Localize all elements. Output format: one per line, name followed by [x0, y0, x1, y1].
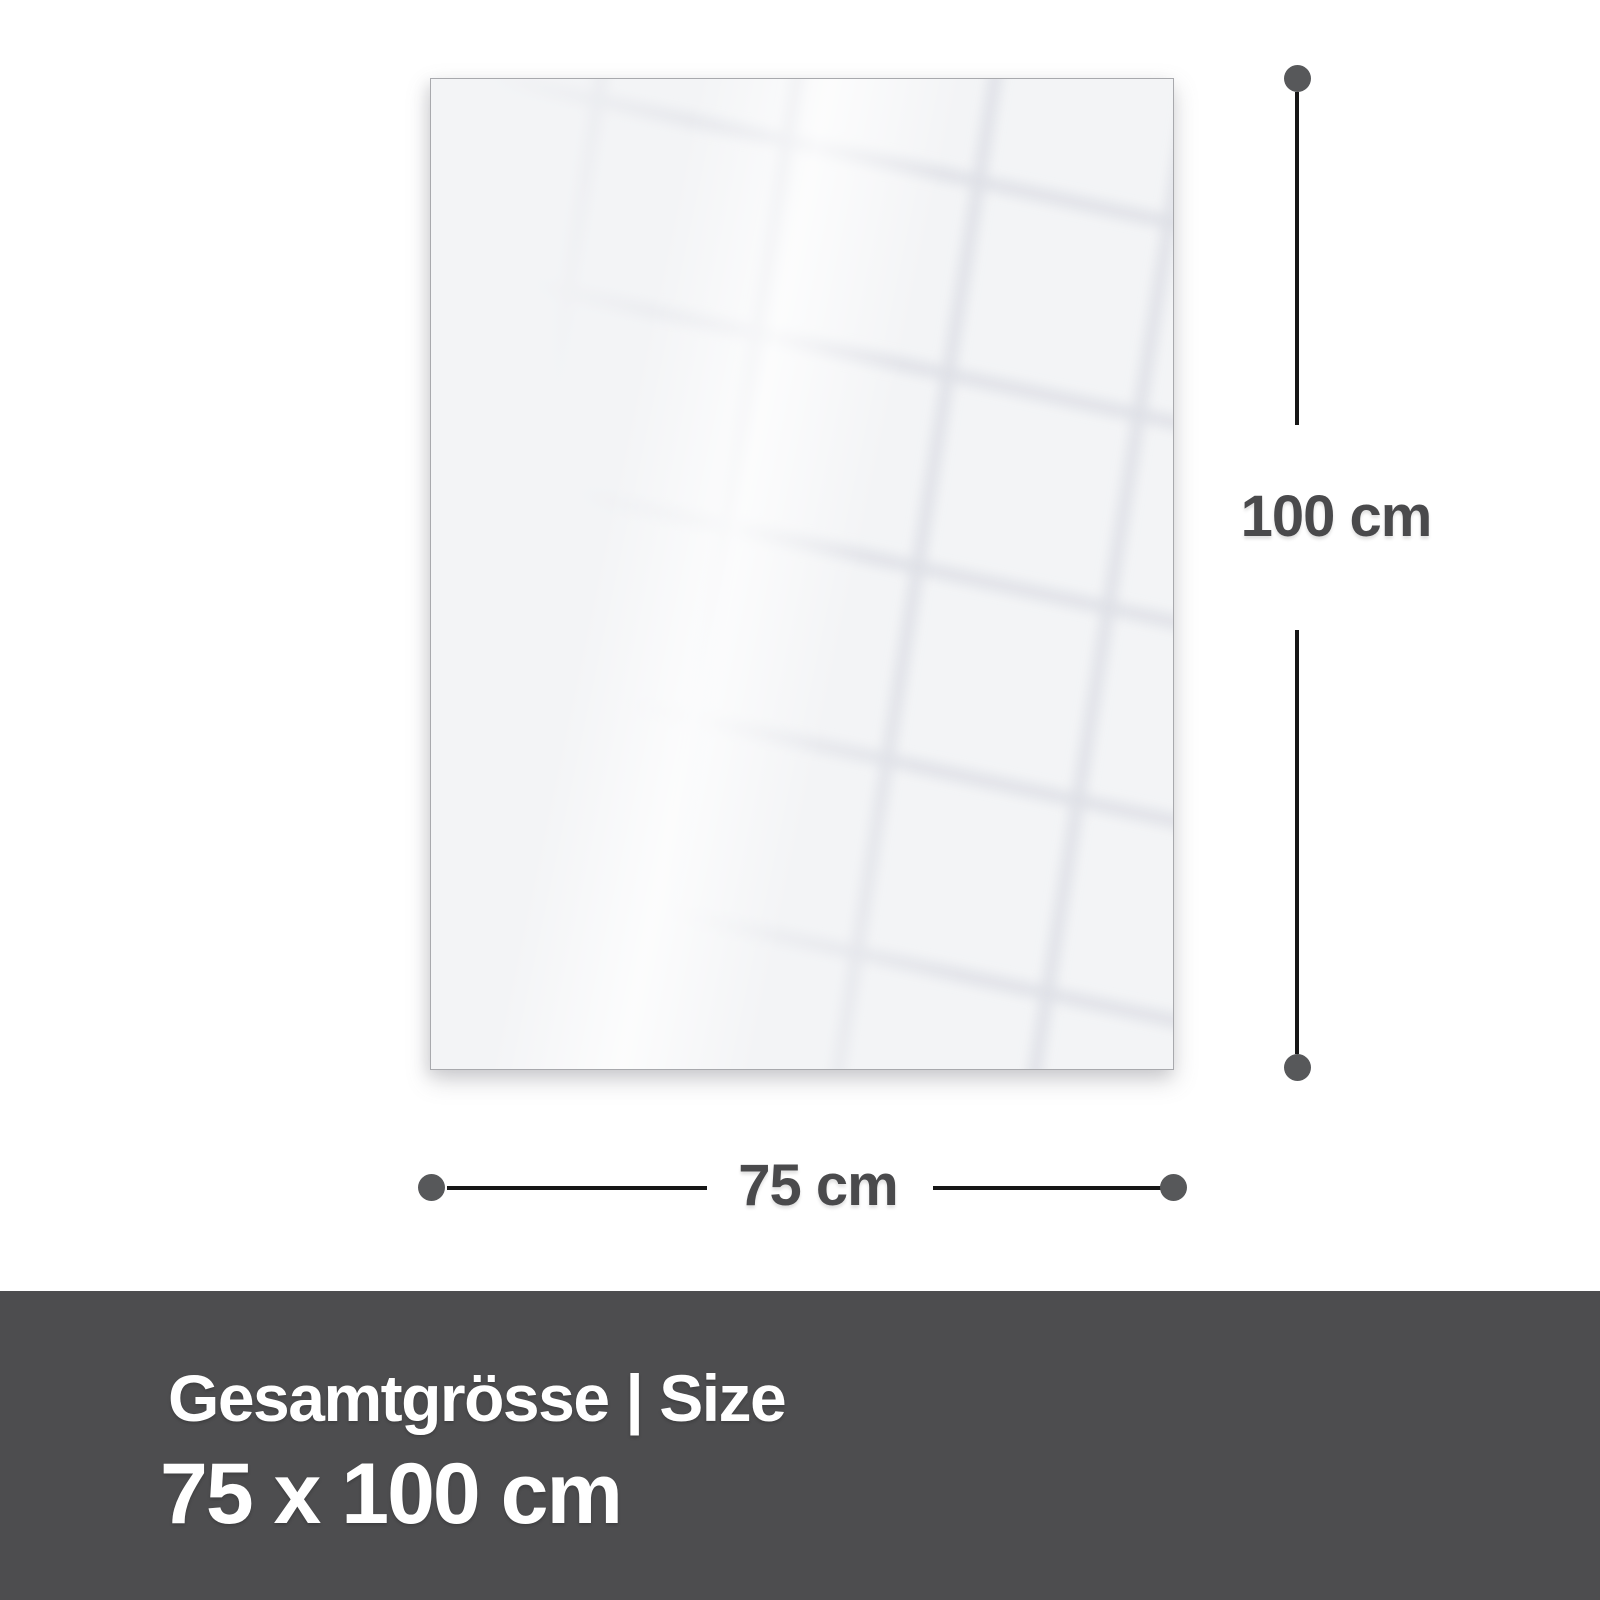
height-dimension-line-upper	[1295, 92, 1299, 425]
dimension-endpoint-dot-icon	[1284, 65, 1311, 92]
size-footer: Gesamtgrösse | Size 75 x 100 cm	[0, 1291, 1600, 1600]
dimension-endpoint-dot-icon	[1284, 1054, 1311, 1081]
width-dimension-line-left	[447, 1186, 707, 1190]
width-dimension-line-right	[933, 1186, 1163, 1190]
height-dimension-line-lower	[1295, 630, 1299, 1054]
product-size-diagram: 100 cm 75 cm Gesamtgrösse | Size 75 x 10…	[0, 0, 1600, 1600]
footer-size-value: 75 x 100 cm	[160, 1451, 621, 1537]
glass-panel-preview	[430, 78, 1174, 1070]
dimension-endpoint-dot-icon	[418, 1174, 445, 1201]
footer-title: Gesamtgrösse | Size	[168, 1365, 785, 1431]
height-dimension-label: 100 cm	[1241, 488, 1432, 546]
width-dimension-label: 75 cm	[738, 1157, 897, 1215]
dimension-endpoint-dot-icon	[1160, 1174, 1187, 1201]
glass-sheen	[431, 79, 1173, 1069]
